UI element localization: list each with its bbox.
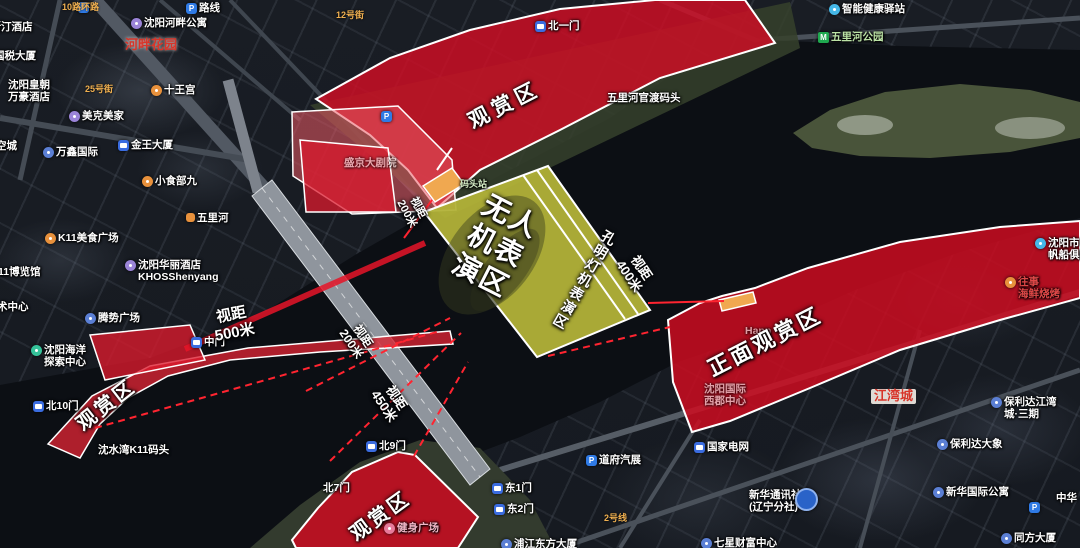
wulihe-road-label: 五里河 bbox=[197, 212, 229, 224]
state-grid-label: 国家电网 bbox=[707, 441, 749, 453]
island-sandbar bbox=[995, 117, 1065, 139]
wulihe-road-text: 五里河 bbox=[197, 212, 229, 224]
gate-north-1[interactable]: 北一门 bbox=[535, 20, 580, 32]
gate-north-10[interactable]: 北10门 bbox=[33, 400, 79, 412]
gate-east-2[interactable]: 东2门 bbox=[494, 503, 534, 515]
daofu-auto-show-text: 道府汽展 bbox=[599, 454, 641, 466]
road-line-2-label: 2号线 bbox=[604, 513, 627, 523]
shengjing-theater[interactable]: 盛京大剧院 bbox=[344, 157, 397, 169]
jiangwan-city-label: 江湾城 bbox=[871, 389, 916, 404]
ocean-exploration-center-label2: 探索中心 bbox=[44, 356, 86, 368]
k11-art-center-text: 术中心 bbox=[0, 301, 29, 313]
meike-meijia-label: 美克美家 bbox=[82, 110, 124, 122]
smart-health-station-label: 智能健康驿站 bbox=[842, 3, 905, 15]
tengshi-plaza-icon bbox=[85, 313, 96, 324]
xinhua-news-agency-label: 新华通讯社 bbox=[749, 489, 802, 501]
wulihe-park-metro-icon: M bbox=[818, 32, 829, 43]
baolida-jiangwan-phase3-icon bbox=[991, 397, 1002, 408]
road-10-ring-text: 10路环路 bbox=[62, 2, 99, 12]
shenyang-international-xijun-center-text: 沈阳国际西郡中心 bbox=[704, 383, 746, 407]
tengshi-plaza-text: 腾势广场 bbox=[98, 312, 140, 324]
xiaoshibu-jiu-icon bbox=[142, 176, 153, 187]
jiangwan-city[interactable]: 江湾城 bbox=[871, 389, 916, 404]
smart-health-station[interactable]: 智能健康驿站 bbox=[829, 3, 905, 15]
khos-hotel-label: 沈阳华丽酒店 bbox=[138, 259, 219, 271]
gate-east-1-label: 东1门 bbox=[505, 482, 532, 494]
shenyang-international-xijun-center[interactable]: 沈阳国际西郡中心 bbox=[704, 383, 746, 407]
gate-north-1-text: 北一门 bbox=[548, 20, 580, 32]
khos-hotel-icon bbox=[125, 260, 136, 271]
gate-north-7[interactable]: 北7门 bbox=[323, 482, 350, 494]
westin-hotel-label: 威斯汀酒店 bbox=[0, 21, 33, 33]
k11-expo-hall-text: 11博览馆 bbox=[0, 266, 41, 278]
tengshi-plaza-label: 腾势广场 bbox=[98, 312, 140, 324]
k11-food-plaza[interactable]: K11美食广场 bbox=[45, 232, 119, 244]
gate-east-2-text: 东2门 bbox=[507, 503, 534, 515]
khos-hotel[interactable]: 沈阳华丽酒店KHOSShenyang bbox=[125, 259, 219, 283]
wanxin-international-text: 万鑫国际 bbox=[56, 146, 98, 158]
hepan-garden[interactable]: 河畔花园 bbox=[125, 38, 177, 53]
dock-station[interactable]: 码头站 bbox=[460, 179, 487, 189]
baolida-jiangwan-phase3[interactable]: 保利达江湾城·三期 bbox=[991, 396, 1057, 420]
shiwang-palace-label: 十王宫 bbox=[164, 84, 196, 96]
xinhua-news-agency-marker-icon bbox=[795, 488, 818, 511]
gate-east-1-text: 东1门 bbox=[505, 482, 532, 494]
jiangwan-city-text: 江湾城 bbox=[871, 389, 916, 404]
xiaoshibu-jiu[interactable]: 小食部九 bbox=[142, 175, 197, 187]
wulihe-park-metro[interactable]: M五里河公园 bbox=[818, 31, 884, 43]
fitness-square-label: 健身广场 bbox=[397, 522, 439, 534]
state-grid[interactable]: 国家电网 bbox=[694, 441, 749, 453]
sailing-club-label: 沈阳市 bbox=[1048, 237, 1080, 249]
gate-north-1-icon bbox=[535, 21, 546, 32]
shengjing-theater-label: 盛京大剧院 bbox=[344, 157, 397, 169]
zhonghua-label-text: 中华 bbox=[1056, 492, 1077, 504]
daofu-auto-show[interactable]: P道府汽展 bbox=[586, 454, 641, 466]
tongfang-building-icon bbox=[1001, 533, 1012, 544]
wulihe-road[interactable]: 五里河 bbox=[186, 212, 229, 224]
wulihe-road-icon bbox=[186, 213, 195, 222]
hepan-garden-label: 河畔花园 bbox=[125, 38, 177, 53]
xinhua-international-apartment-label: 新华国际公寓 bbox=[946, 486, 1009, 498]
baolida-jiangwan-phase3-text: 保利达江湾城·三期 bbox=[1004, 396, 1057, 420]
road-line-2[interactable]: 2号线 bbox=[604, 513, 627, 523]
seafood-bbq-restaurant-label: 往事 bbox=[1018, 276, 1060, 288]
meike-meijia[interactable]: 美克美家 bbox=[69, 110, 124, 122]
sailing-club-text: 沈阳市帆船俱乐部 bbox=[1048, 237, 1080, 261]
dock-station-label: 码头站 bbox=[460, 179, 487, 189]
guoshui-building-text: 国税大厦 bbox=[0, 50, 36, 62]
shenyang-international-xijun-center-label: 沈阳国际 bbox=[704, 383, 746, 395]
gate-north-7-label: 北7门 bbox=[323, 482, 350, 494]
hepan-garden-text: 河畔花园 bbox=[125, 38, 177, 53]
gate-north-1-label: 北一门 bbox=[548, 20, 580, 32]
huangchao-marriott-hotel-text: 沈阳皇朝万豪酒店 bbox=[8, 79, 50, 103]
seven-star-wealth-center-text: 七星财富中心 bbox=[714, 537, 777, 548]
kongcheng-label[interactable]: 空城 bbox=[0, 140, 17, 152]
guoshui-building[interactable]: 国税大厦 bbox=[0, 50, 36, 62]
khos-hotel-label2: KHOSShenyang bbox=[138, 271, 219, 283]
guoshui-building-label: 国税大厦 bbox=[0, 50, 36, 62]
seafood-bbq-restaurant-label2: 海鲜烧烤 bbox=[1018, 288, 1060, 300]
seven-star-wealth-center-icon bbox=[701, 538, 712, 548]
smart-health-station-icon bbox=[829, 4, 840, 15]
parking-theater[interactable]: P bbox=[381, 110, 392, 122]
seafood-bbq-restaurant[interactable]: 往事海鲜烧烤 bbox=[1005, 276, 1060, 300]
road-25-street-text: 25号街 bbox=[85, 84, 113, 94]
pujiang-oriental-building-text: 浦江东方大厦 bbox=[514, 538, 577, 548]
riverside-apartment-label: 沈阳河畔公寓 bbox=[144, 17, 207, 29]
road-12-street[interactable]: 12号街 bbox=[336, 10, 364, 20]
seven-star-wealth-center-label: 七星财富中心 bbox=[714, 537, 777, 548]
gate-east-1[interactable]: 东1门 bbox=[492, 482, 532, 494]
state-grid-text: 国家电网 bbox=[707, 441, 749, 453]
wulihe-park-metro-label: 五里河公园 bbox=[831, 31, 884, 43]
westin-hotel[interactable]: 威斯汀酒店 bbox=[0, 21, 33, 33]
ocean-exploration-center-text: 沈阳海洋探索中心 bbox=[44, 344, 86, 368]
k11-expo-hall-label: 11博览馆 bbox=[0, 266, 41, 278]
xinhua-international-apartment[interactable]: 新华国际公寓 bbox=[933, 486, 1009, 498]
xiaoshibu-jiu-text: 小食部九 bbox=[155, 175, 197, 187]
seafood-bbq-restaurant-icon bbox=[1005, 277, 1016, 288]
gate-north-10-label: 北10门 bbox=[46, 400, 79, 412]
wulihe-ferry-dock-text: 五里河官渡码头 bbox=[607, 92, 681, 104]
dock-station-text: 码头站 bbox=[460, 179, 487, 189]
shenyang-international-xijun-center-label2: 西郡中心 bbox=[704, 395, 746, 407]
ocean-exploration-center-icon bbox=[31, 345, 42, 356]
gate-east-2-label: 东2门 bbox=[507, 503, 534, 515]
gate-east-1-icon bbox=[492, 483, 503, 494]
khos-hotel-text: 沈阳华丽酒店KHOSShenyang bbox=[138, 259, 219, 283]
route-label-label: 路线 bbox=[199, 2, 220, 14]
sailing-club-icon bbox=[1035, 238, 1046, 249]
wanxin-international-icon bbox=[43, 147, 54, 158]
xinhua-news-agency-text: 新华通讯社(辽宁分社) bbox=[749, 489, 802, 513]
fitness-square[interactable]: 健身广场 bbox=[384, 522, 439, 534]
gate-north-9-text: 北9门 bbox=[379, 440, 406, 452]
daofu-auto-show-icon: P bbox=[586, 455, 597, 466]
gate-east-2-icon bbox=[494, 504, 505, 515]
seven-star-wealth-center[interactable]: 七星财富中心 bbox=[701, 537, 777, 548]
route-label[interactable]: P路线 bbox=[186, 2, 220, 14]
baolida-elephant-label: 保利达大象 bbox=[950, 438, 1003, 450]
huangchao-marriott-hotel[interactable]: 沈阳皇朝万豪酒店 bbox=[8, 79, 50, 103]
xinhua-international-apartment-icon bbox=[933, 487, 944, 498]
xiaoshibu-jiu-label: 小食部九 bbox=[155, 175, 197, 187]
k11-food-plaza-text: K11美食广场 bbox=[58, 232, 119, 244]
wulihe-park-metro-text: 五里河公园 bbox=[831, 31, 884, 43]
baolida-jiangwan-phase3-label: 保利达江湾 bbox=[1004, 396, 1057, 408]
viewing-zone-theater-inner bbox=[300, 140, 396, 212]
wulihe-ferry-dock[interactable]: 五里河官渡码头 bbox=[607, 92, 681, 104]
ocean-exploration-center[interactable]: 沈阳海洋探索中心 bbox=[31, 344, 86, 368]
gate-north-10-text: 北10门 bbox=[46, 400, 79, 412]
xinhua-news-agency-marker[interactable] bbox=[795, 487, 818, 511]
meike-meijia-text: 美克美家 bbox=[82, 110, 124, 122]
k11-food-plaza-icon bbox=[45, 233, 56, 244]
jinwang-building-label: 金王大厦 bbox=[131, 139, 173, 151]
island-sandbar bbox=[837, 115, 893, 135]
road-25-street[interactable]: 25号街 bbox=[85, 84, 113, 94]
tongfang-building[interactable]: 同方大厦 bbox=[1001, 532, 1056, 544]
tongfang-building-text: 同方大厦 bbox=[1014, 532, 1056, 544]
xinhua-news-agency-label2: (辽宁分社) bbox=[749, 501, 802, 513]
road-12-street-label: 12号街 bbox=[336, 10, 364, 20]
road-line-2-text: 2号线 bbox=[604, 513, 627, 523]
bridge-ramp bbox=[228, 80, 258, 192]
zhonghua-label[interactable]: 中华 bbox=[1056, 492, 1077, 504]
shengjing-theater-text: 盛京大剧院 bbox=[344, 157, 397, 169]
state-grid-icon bbox=[694, 442, 705, 453]
parking-bottom-right-icon: P bbox=[1029, 502, 1040, 513]
kongcheng-label-text: 空城 bbox=[0, 140, 17, 152]
jinwang-building-text: 金王大厦 bbox=[131, 139, 173, 151]
tengshi-plaza[interactable]: 腾势广场 bbox=[85, 312, 140, 324]
k11-art-center-label: 术中心 bbox=[0, 301, 29, 313]
riverside-apartment-icon bbox=[131, 18, 142, 29]
jinwang-building[interactable]: 金王大厦 bbox=[118, 139, 173, 151]
shenshui-bay-k11-dock-label: 沈水湾K11码头 bbox=[98, 444, 169, 456]
parking-theater-icon: P bbox=[381, 111, 392, 122]
pujiang-oriental-building-icon bbox=[501, 539, 512, 548]
smart-health-station-text: 智能健康驿站 bbox=[842, 3, 905, 15]
kongcheng-label-label: 空城 bbox=[0, 140, 17, 152]
shiwang-palace-icon bbox=[151, 85, 162, 96]
gate-north-9-label: 北9门 bbox=[379, 440, 406, 452]
baolida-elephant[interactable]: 保利达大象 bbox=[937, 438, 1003, 450]
daofu-auto-show-label: 道府汽展 bbox=[599, 454, 641, 466]
gate-north-7-text: 北7门 bbox=[323, 482, 350, 494]
fitness-square-text: 健身广场 bbox=[397, 522, 439, 534]
tongfang-building-label: 同方大厦 bbox=[1014, 532, 1056, 544]
sailing-club-label2: 帆船俱乐部 bbox=[1048, 249, 1080, 261]
seafood-bbq-restaurant-text: 往事海鲜烧烤 bbox=[1018, 276, 1060, 300]
k11-food-plaza-label: K11美食广场 bbox=[58, 232, 119, 244]
huangchao-marriott-hotel-label: 沈阳皇朝 bbox=[8, 79, 50, 91]
shenshui-bay-k11-dock-text: 沈水湾K11码头 bbox=[98, 444, 169, 456]
wanxin-international-label: 万鑫国际 bbox=[56, 146, 98, 158]
route-label-icon: P bbox=[186, 3, 197, 14]
k11-art-center[interactable]: 术中心 bbox=[0, 301, 29, 313]
gate-north-9[interactable]: 北9门 bbox=[366, 440, 406, 452]
pujiang-oriental-building[interactable]: 浦江东方大厦 bbox=[501, 538, 577, 548]
xinhua-news-agency[interactable]: 新华通讯社(辽宁分社) bbox=[749, 489, 802, 513]
shenshui-bay-k11-dock[interactable]: 沈水湾K11码头 bbox=[98, 444, 169, 456]
baolida-jiangwan-phase3-label2: 城·三期 bbox=[1004, 408, 1057, 420]
meike-meijia-icon bbox=[69, 111, 80, 122]
shiwang-palace-text: 十王宫 bbox=[164, 84, 196, 96]
wanxin-international[interactable]: 万鑫国际 bbox=[43, 146, 98, 158]
ocean-exploration-center-label: 沈阳海洋 bbox=[44, 344, 86, 356]
gate-north-9-icon bbox=[366, 441, 377, 452]
shiwang-palace[interactable]: 十王宫 bbox=[151, 84, 196, 96]
xinhua-international-apartment-text: 新华国际公寓 bbox=[946, 486, 1009, 498]
sight-distance-500: 视距500米 bbox=[210, 303, 256, 345]
road-25-street-label: 25号街 bbox=[85, 84, 113, 94]
k11-expo-hall[interactable]: 11博览馆 bbox=[0, 266, 41, 278]
gate-north-10-icon bbox=[33, 401, 44, 412]
road-12-street-text: 12号街 bbox=[336, 10, 364, 20]
huangchao-marriott-hotel-label2: 万豪酒店 bbox=[8, 91, 50, 103]
westin-hotel-text: 威斯汀酒店 bbox=[0, 21, 33, 33]
zhonghua-label-label: 中华 bbox=[1056, 492, 1077, 504]
road-10-ring-label: 10路环路 bbox=[62, 2, 99, 12]
riverside-apartment-text: 沈阳河畔公寓 bbox=[144, 17, 207, 29]
baolida-elephant-icon bbox=[937, 439, 948, 450]
pujiang-oriental-building-label: 浦江东方大厦 bbox=[514, 538, 577, 548]
baolida-elephant-text: 保利达大象 bbox=[950, 438, 1003, 450]
gate-middle-icon bbox=[191, 337, 202, 348]
parking-bottom-right[interactable]: P bbox=[1029, 501, 1040, 513]
satellite-map-canvas[interactable]: PP路线10路环路12号街沈阳河畔公寓威斯汀酒店河畔花园国税大厦十王宫沈阳皇朝万… bbox=[0, 0, 1080, 548]
riverside-apartment[interactable]: 沈阳河畔公寓 bbox=[131, 17, 207, 29]
sailing-club[interactable]: 沈阳市帆船俱乐部 bbox=[1035, 237, 1080, 261]
route-label-text: 路线 bbox=[199, 2, 220, 14]
wulihe-ferry-dock-label: 五里河官渡码头 bbox=[607, 92, 681, 104]
road-10-ring[interactable]: 10路环路 bbox=[62, 2, 99, 12]
jinwang-building-icon bbox=[118, 140, 129, 151]
